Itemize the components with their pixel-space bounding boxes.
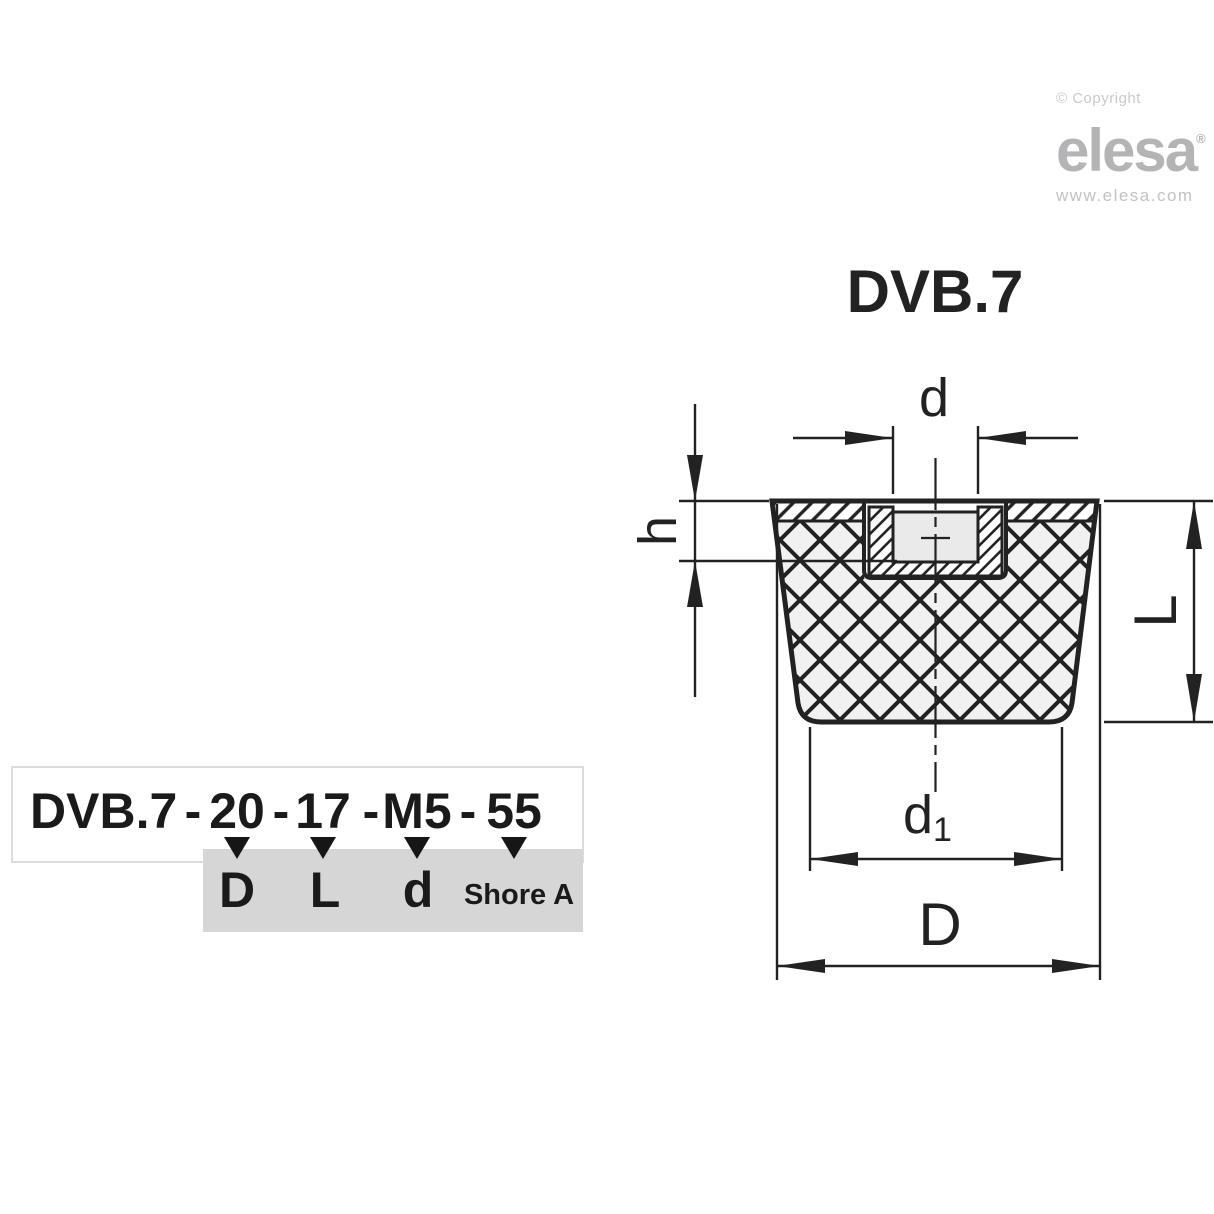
code-value-d: M5: [382, 766, 451, 856]
arrowhead: [1014, 852, 1062, 866]
arrowhead: [810, 852, 858, 866]
arrowhead: [687, 455, 703, 501]
technical-drawing: DVB.7: [0, 0, 1214, 1214]
legend-label-d: d: [403, 868, 434, 912]
legend-label-D: D: [219, 868, 255, 912]
label-L: L: [1122, 594, 1189, 627]
arrowhead: [687, 561, 703, 607]
legend-label-L: L: [310, 868, 341, 912]
code-value-D: 20: [209, 766, 265, 856]
code-separator: -: [185, 766, 202, 856]
catalog-page: © Copyright elesa® www.elesa.com DVB.7: [0, 0, 1214, 1214]
label-d: d: [919, 368, 949, 428]
arrowhead: [1186, 501, 1202, 549]
code-separator: -: [273, 766, 290, 856]
arrowhead: [777, 959, 825, 973]
code-value-shore: 55: [486, 766, 542, 856]
label-d1-subscript: 1: [933, 811, 952, 849]
code-separator: -: [363, 766, 380, 856]
label-h: h: [628, 516, 688, 546]
code-separator: -: [460, 766, 477, 856]
arrowhead: [1052, 959, 1100, 973]
arrowhead: [1186, 674, 1202, 722]
label-D: D: [918, 891, 961, 958]
ordering-code-series: DVB.7: [30, 766, 177, 856]
legend-label-shore-a: Shore A: [464, 880, 574, 910]
drawing-title: DVB.7: [847, 258, 1024, 325]
arrowhead: [978, 431, 1026, 445]
code-value-L: 17: [295, 766, 351, 856]
arrowhead: [845, 431, 893, 445]
label-d1: d: [903, 785, 933, 845]
damper-body: [770, 458, 1100, 792]
